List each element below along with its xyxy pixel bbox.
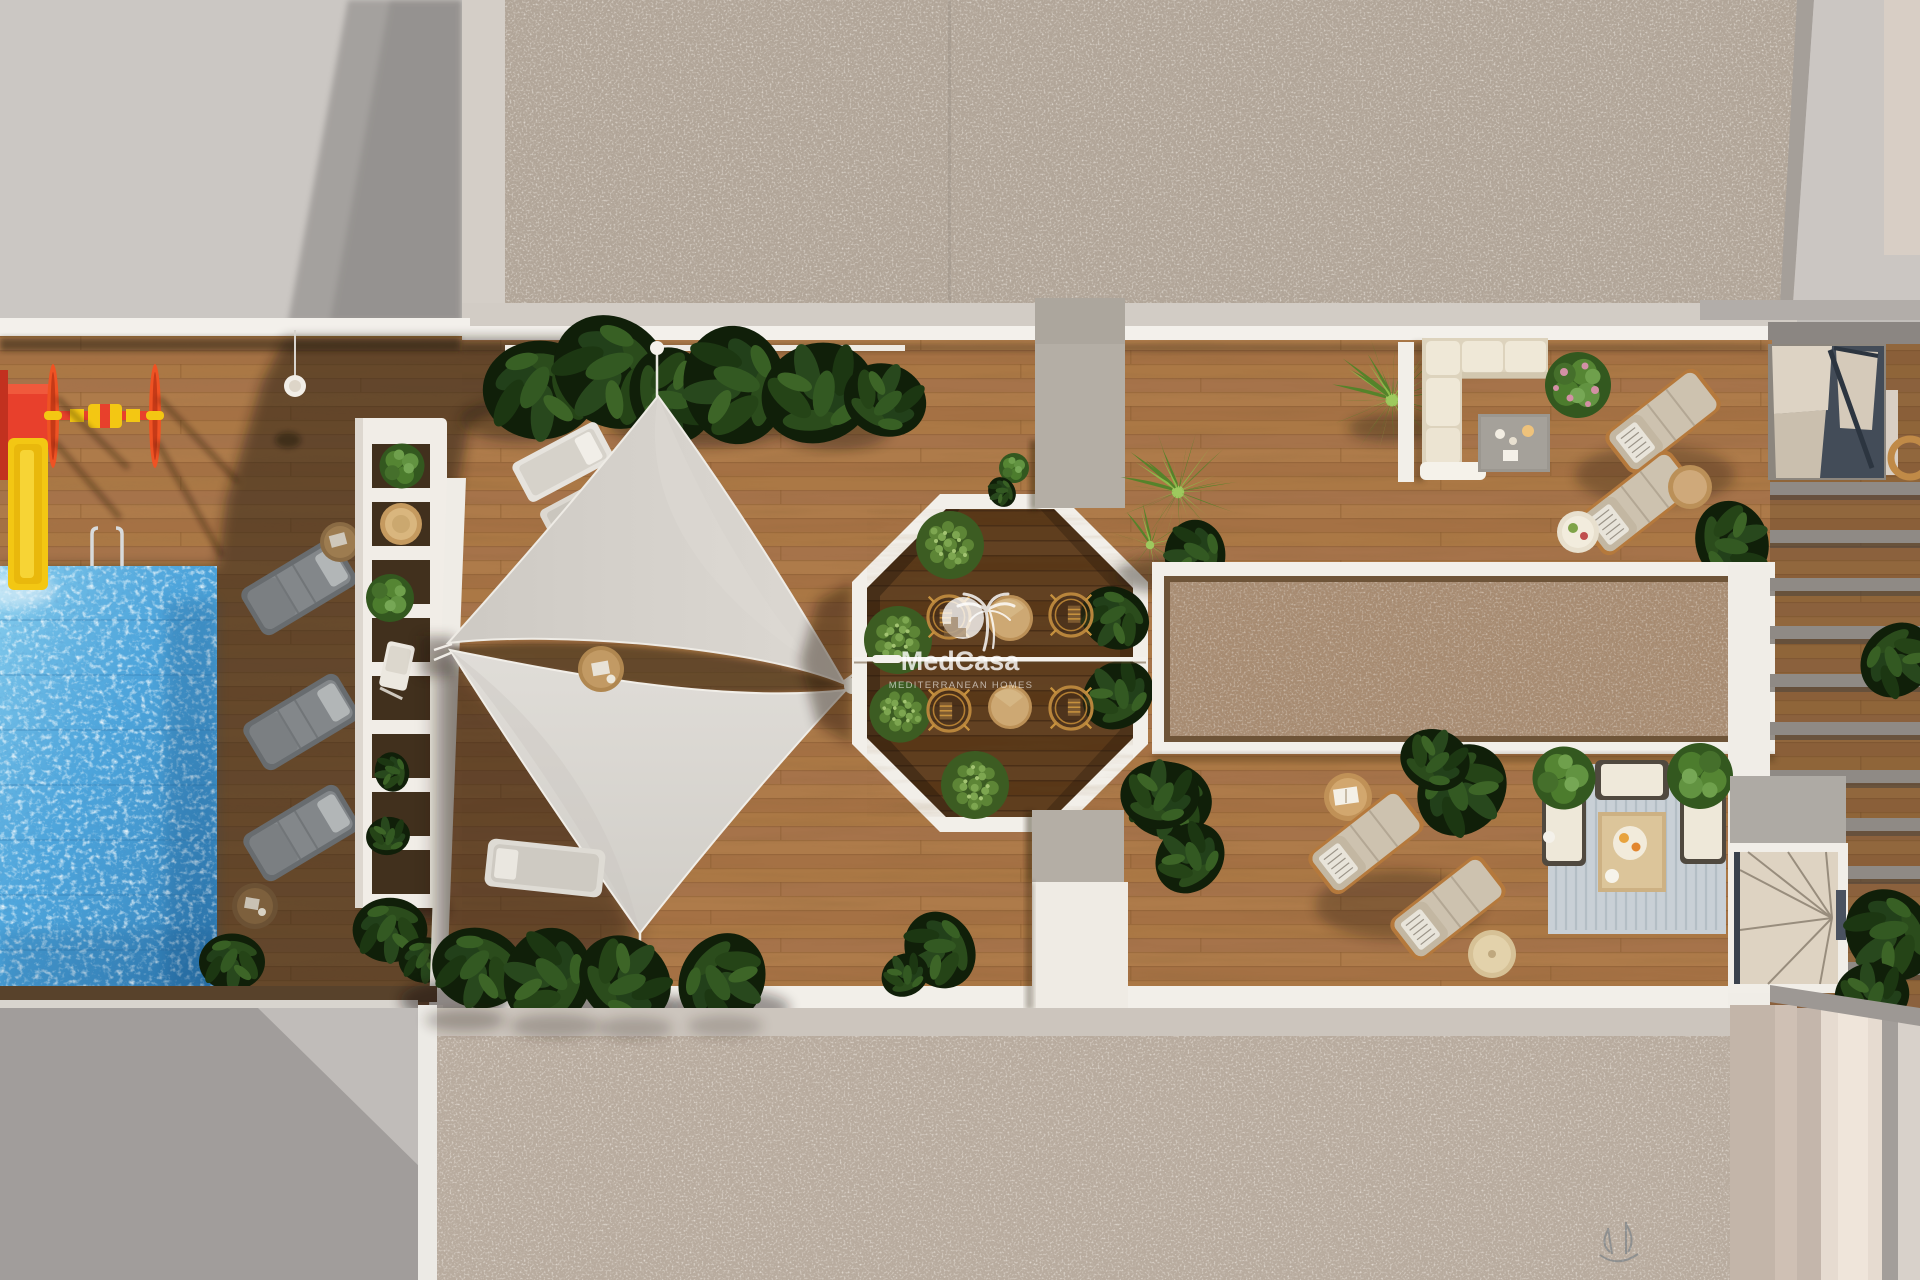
svg-text:MedCasa: MedCasa bbox=[901, 646, 1021, 676]
svg-text:MEDITERRANEAN HOMES: MEDITERRANEAN HOMES bbox=[889, 680, 1034, 691]
